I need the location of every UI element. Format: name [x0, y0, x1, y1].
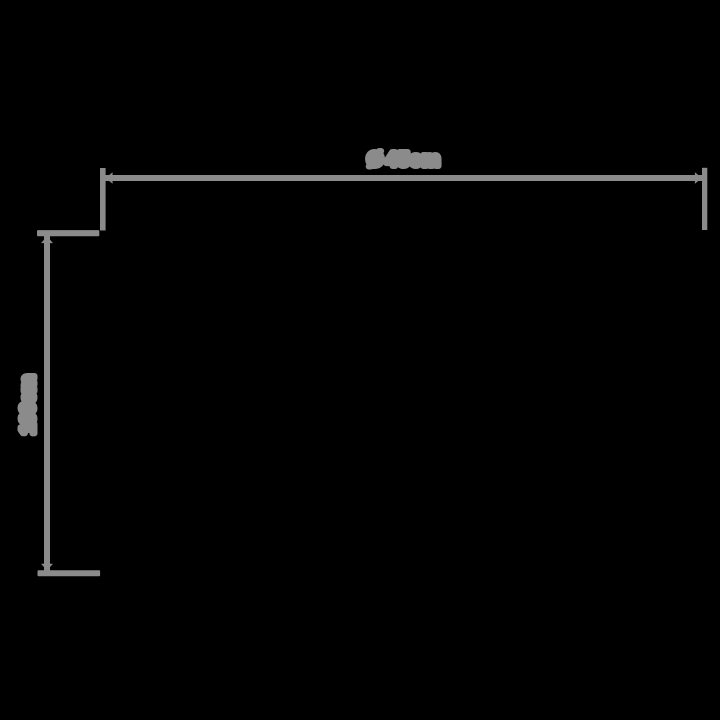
svg-text:100cm: 100cm	[18, 375, 40, 434]
svg-text:Ø 45cm: Ø 45cm	[367, 149, 440, 171]
